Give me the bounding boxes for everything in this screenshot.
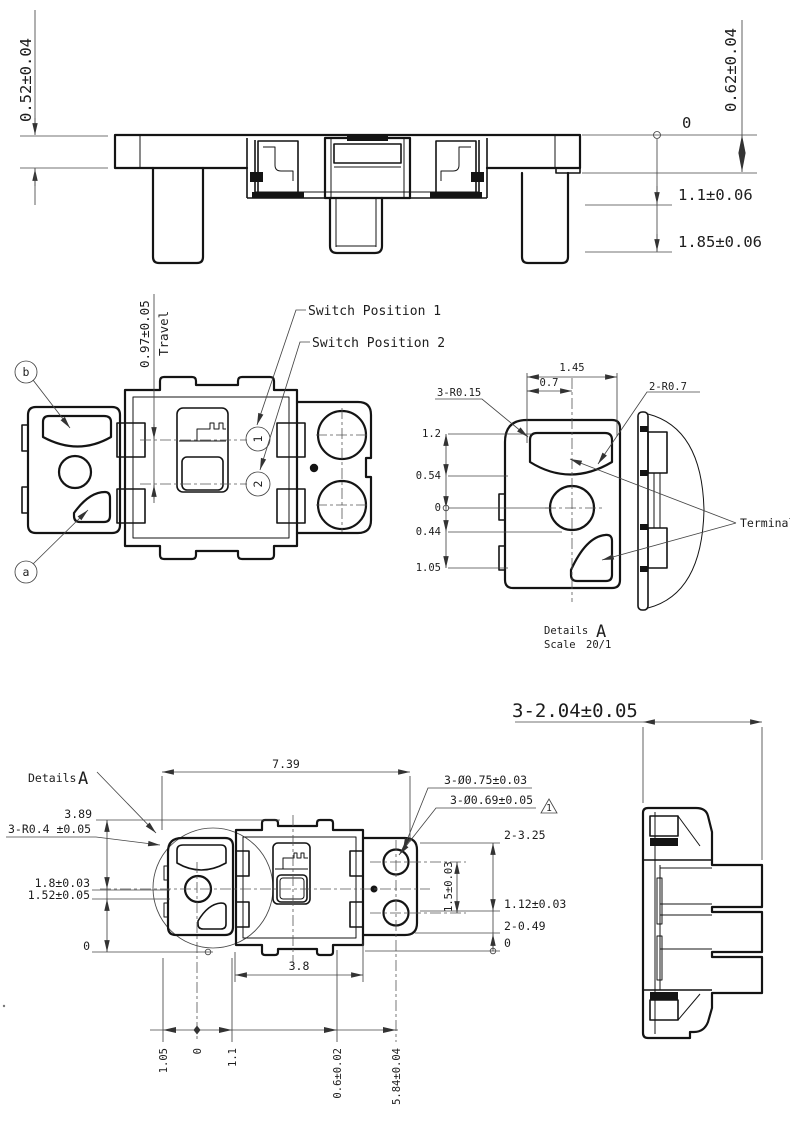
dim-38: 3.8: [289, 959, 310, 973]
detail-ord-054: 0.54: [416, 470, 441, 482]
detail-dim-145: 1.45: [559, 362, 584, 374]
top-view-dimensions: 0.52±0.04 0.62±0.04 0 1.1±0.06 1.85±0.06: [17, 10, 762, 252]
dim-584: 5.84±0.04: [391, 1048, 403, 1105]
datum-right: 0: [504, 936, 511, 950]
datum-bottom: 0: [192, 1048, 204, 1054]
dim-389: 3.89: [64, 807, 92, 821]
hole-note-2: 3-Ø0.69±0.05: [450, 793, 533, 807]
dim-11-bottom: 1.1: [227, 1048, 239, 1067]
dim-105-bottom: 1.05: [158, 1048, 170, 1073]
datum-left: 0: [83, 939, 90, 953]
balloon-a: a: [23, 565, 30, 579]
dim-step2: 1.85±0.06: [678, 233, 762, 251]
side-view-dimensions: 3-2.04±0.05: [512, 700, 762, 860]
dim-112: 1.12±0.03: [504, 897, 566, 911]
balloon-b: b: [23, 365, 30, 379]
bottom-view-part: [100, 815, 466, 1042]
dim-top-right: 0.62±0.04: [722, 28, 740, 112]
bottom-view-dimensions: Details A 7.39 3-Ø0.75±0.03 3-Ø0.69±0.05…: [6, 757, 566, 1105]
dim-15: 1.5±0.03: [443, 861, 455, 912]
detail-ord-105: 1.05: [416, 562, 441, 574]
balloon-1: 1: [251, 435, 265, 442]
radius-note-r04: 3-R0.4 ±0.05: [8, 822, 91, 836]
dim-step1: 1.1±0.06: [678, 186, 753, 204]
detail-view-part: [499, 378, 704, 610]
detail-a-circle: [153, 828, 273, 948]
dim-pitch-204: 3-2.04±0.05: [512, 700, 638, 722]
switch-position-1-label: Switch Position 1: [308, 304, 441, 319]
hole-note-1: 3-Ø0.75±0.03: [444, 773, 527, 787]
drawing-canvas: 0.52±0.04 0.62±0.04 0 1.1±0.06 1.85±0.06: [0, 0, 790, 1123]
dim-152: 1.52±0.05: [28, 888, 90, 902]
travel-dim: 0.97±0.05: [137, 300, 152, 368]
balloon-2: 2: [251, 481, 265, 488]
dim-2049: 2-0.49: [504, 919, 546, 933]
detail-caption-word: Details: [544, 625, 588, 637]
dim-739: 7.39: [272, 757, 300, 771]
detail-dim-07: 0.7: [540, 377, 559, 389]
detail-ord-12: 1.2: [422, 428, 441, 440]
bottom-details-letter: A: [78, 769, 88, 789]
terminals-label: Terminals: [740, 516, 790, 530]
middle-view-part: [22, 377, 371, 559]
datum-zero-label: 0: [682, 114, 691, 132]
travel-label: Travel: [156, 311, 171, 356]
detail-view-dimensions: 1.45 0.7 3-R0.15 2-R0.7 1.2 0.54 0 0.44 …: [416, 362, 790, 651]
bottom-details-word: Details: [28, 771, 76, 785]
detail-ord-0: 0: [435, 502, 441, 514]
flag-number: 1: [546, 803, 552, 814]
dim-06: 0.6±0.02: [332, 1048, 344, 1099]
detail-scale-value: 20/1: [586, 639, 611, 651]
detail-ord-044: 0.44: [416, 526, 441, 538]
top-view-part: [115, 134, 580, 263]
middle-view-annotations: 0.97±0.05 Travel 1 2 Switch Position 1 S…: [15, 294, 445, 583]
radius-note-1: 3-R0.15: [437, 387, 481, 399]
detail-scale-word: Scale: [544, 639, 576, 651]
drawing-sheet: 0.52±0.04 0.62±0.04 0 1.1±0.06 1.85±0.06: [0, 0, 790, 1123]
stray-mark: [3, 1005, 5, 1007]
side-view-part: [643, 808, 762, 1038]
dim-2325: 2-3.25: [504, 828, 546, 842]
dim-top-left: 0.52±0.04: [17, 38, 35, 122]
radius-note-2: 2-R0.7: [649, 381, 687, 393]
switch-position-2-label: Switch Position 2: [312, 336, 445, 351]
